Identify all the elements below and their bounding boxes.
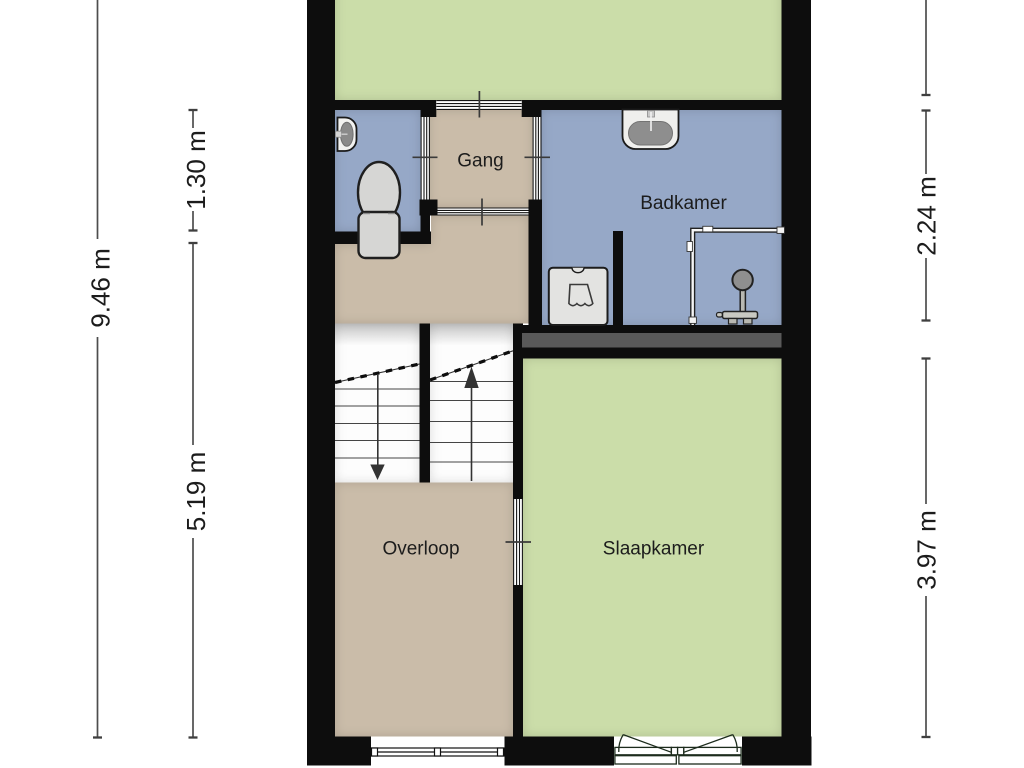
svg-text:Overloop: Overloop: [382, 539, 459, 560]
svg-text:Badkamer: Badkamer: [640, 193, 727, 214]
svg-text:5.19 m: 5.19 m: [181, 452, 211, 532]
svg-text:Slaapkamer: Slaapkamer: [603, 539, 705, 560]
svg-text:9.46 m: 9.46 m: [86, 248, 116, 328]
svg-text:1.30 m: 1.30 m: [181, 130, 211, 210]
svg-text:3.97 m: 3.97 m: [912, 510, 942, 590]
svg-text:2.24 m: 2.24 m: [912, 176, 942, 256]
svg-text:Gang: Gang: [457, 151, 503, 172]
